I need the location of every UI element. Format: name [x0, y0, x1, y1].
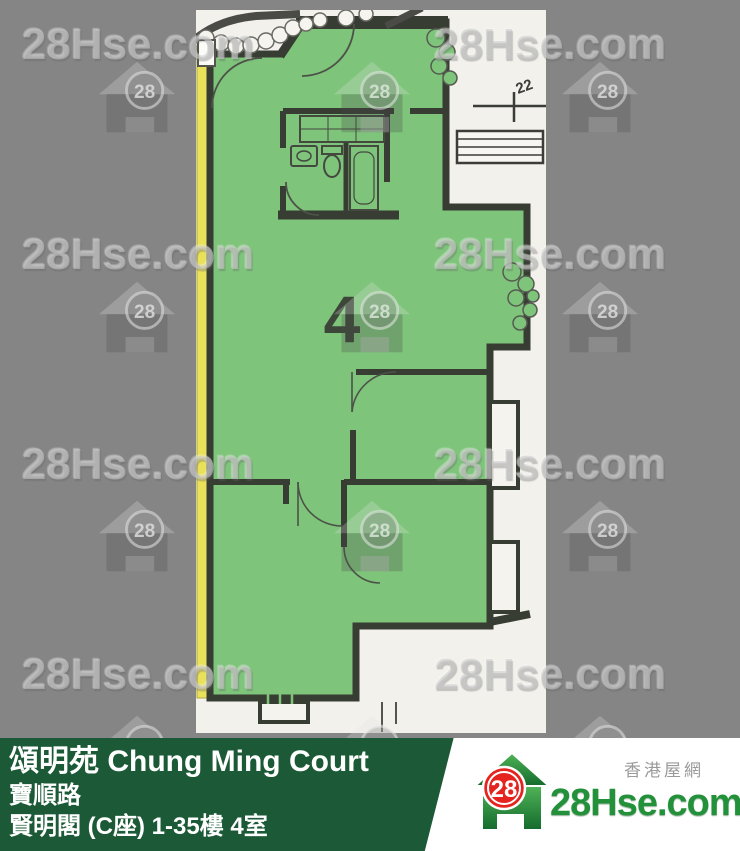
logo-house-icon: 28	[473, 751, 551, 833]
level-marker-label: 22	[514, 76, 535, 98]
watermark-house-icon	[97, 497, 177, 577]
pipe-lines	[382, 702, 396, 732]
watermark-house-icon	[97, 278, 177, 358]
logo-badge: 28	[491, 776, 518, 803]
watermark-house-icon	[560, 497, 640, 577]
unit-number-label: 4	[324, 282, 361, 356]
screenshot-root: 22	[0, 0, 740, 851]
watermark-house-icon	[560, 58, 640, 138]
logo-tagline: 香港屋網	[624, 756, 704, 781]
window-bay	[490, 542, 518, 612]
level-marker: 22	[473, 76, 546, 122]
duct-box	[260, 702, 308, 722]
footer-bar: 頌明苑 Chung Ming Court 寶順路 賢明閣 (C座) 1-35樓 …	[0, 738, 740, 851]
floorplan-drawing: 22	[196, 10, 546, 733]
site-logo: 28 28Hse.com 香港屋網	[468, 748, 734, 844]
watermark-house-icon	[97, 58, 177, 138]
watermark-house-icon	[560, 278, 640, 358]
unit-area	[210, 22, 527, 698]
window-bay	[490, 402, 518, 488]
floorplan-sheet: 22	[196, 10, 546, 733]
logo-site-name: 28Hse.com	[550, 782, 740, 825]
grille-icon	[457, 131, 543, 163]
column-box	[198, 40, 215, 66]
